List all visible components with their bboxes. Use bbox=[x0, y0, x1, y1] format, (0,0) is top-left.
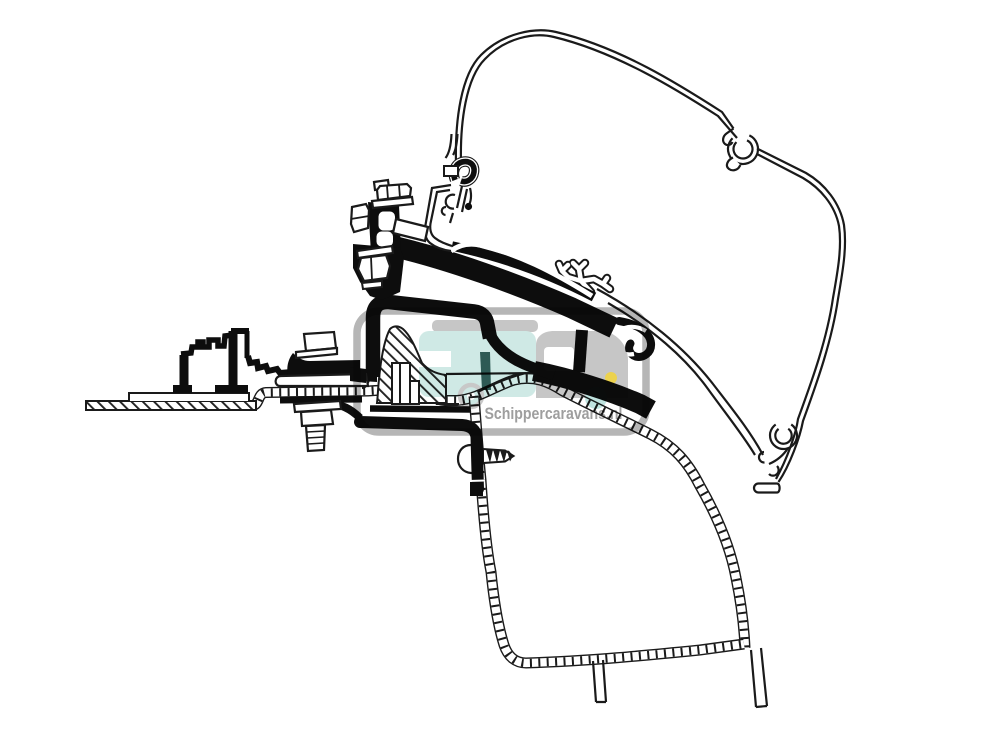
svg-text:Schippercaravans.nl: Schippercaravans.nl bbox=[485, 405, 623, 423]
